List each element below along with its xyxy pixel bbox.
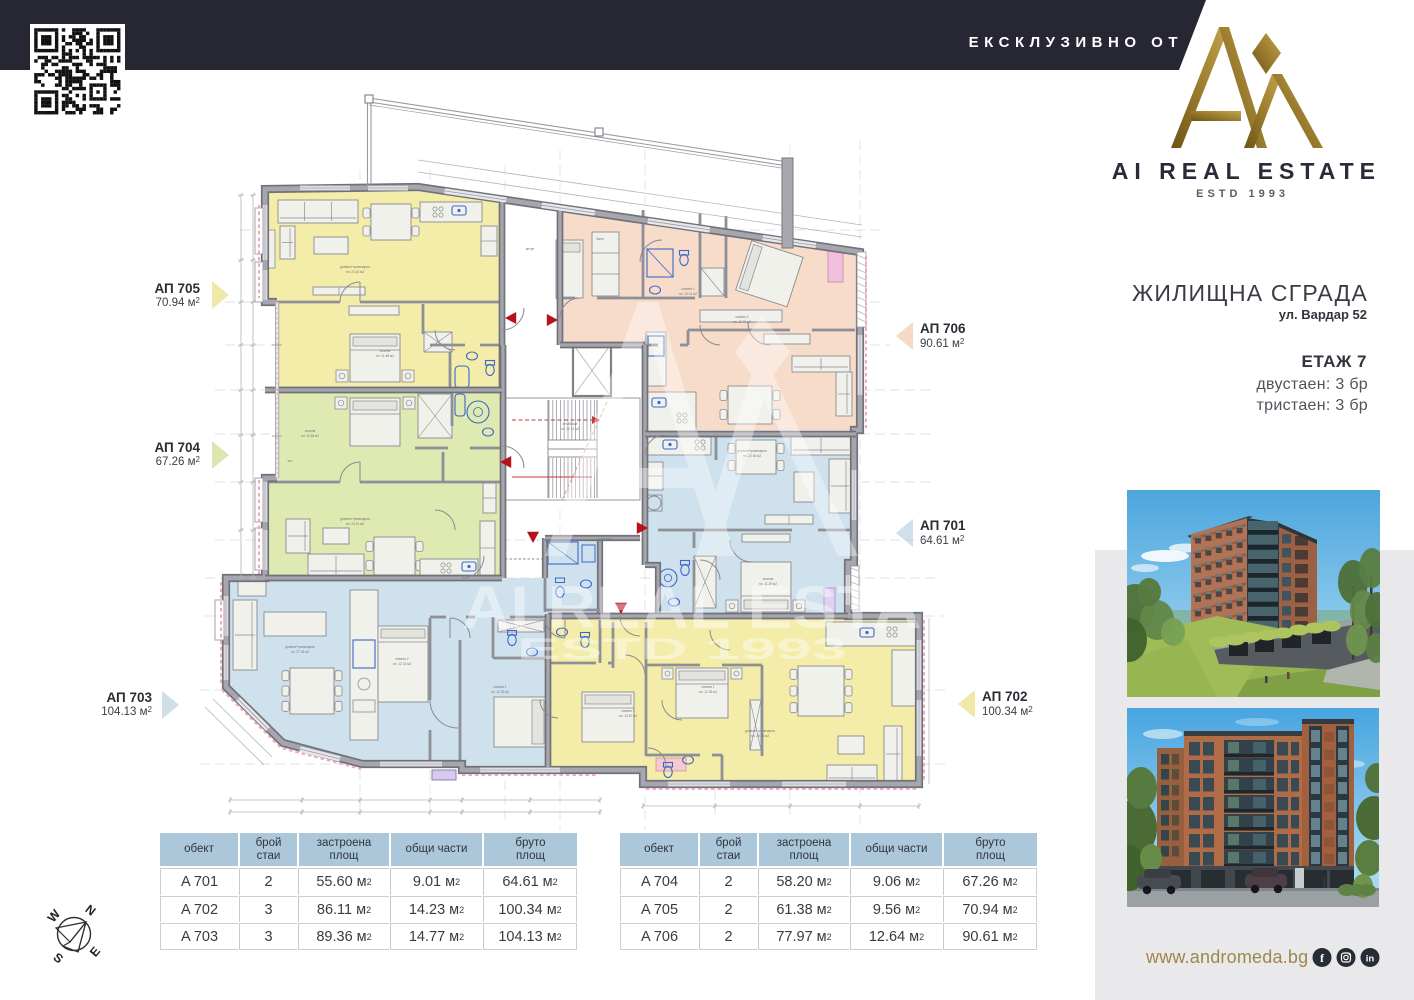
svg-text:пл. 12.33 м2: пл. 12.33 м2 (491, 690, 509, 694)
svg-text:баня: баня (596, 237, 603, 241)
svg-text:ESTD 1993: ESTD 1993 (517, 633, 847, 666)
svg-text:дневна+трапезария: дневна+трапезария (285, 645, 315, 649)
svg-text:пл. 13.67 м2: пл. 13.67 м2 (619, 714, 637, 718)
svg-text:пл. 22.19 м2: пл. 22.19 м2 (561, 427, 579, 431)
svg-text:пл. 12.28 м2: пл. 12.28 м2 (699, 690, 717, 694)
svg-text:пл. 28.04 м2: пл. 28.04 м2 (751, 734, 769, 738)
svg-text:спалня 1: спалня 1 (681, 287, 694, 291)
svg-text:пл. 13.01 м2: пл. 13.01 м2 (679, 292, 697, 296)
svg-text:пл. 11.68 м2: пл. 11.68 м2 (301, 434, 319, 438)
svg-text:пл. 24.41 м2: пл. 24.41 м2 (346, 522, 364, 526)
svg-text:коридор 1: коридор 1 (599, 537, 614, 541)
svg-text:спалня 1: спалня 1 (701, 685, 714, 689)
svg-text:спалня: спалня (380, 349, 391, 353)
svg-text:дневна+трапезария: дневна+трапезария (340, 517, 370, 521)
svg-text:дневна+трапезария: дневна+трапезария (340, 265, 370, 269)
svg-text:спалня 1: спалня 1 (493, 685, 506, 689)
svg-text:пл. 12.31 м2: пл. 12.31 м2 (393, 662, 411, 666)
svg-text:антре: антре (526, 247, 535, 251)
svg-text:дневна+трапезария: дневна+трапезария (745, 729, 775, 733)
svg-text:спалня 2: спалня 2 (395, 657, 408, 661)
svg-text:пл. 11.68 м2: пл. 11.68 м2 (376, 354, 394, 358)
svg-text:кът: кът (288, 459, 293, 463)
svg-text:пл. 11.73 м2: пл. 11.73 м2 (733, 320, 751, 324)
svg-text:AI REAL ESTATE: AI REAL ESTATE (462, 574, 1002, 641)
svg-text:пл. 23.40 м2: пл. 23.40 м2 (346, 270, 364, 274)
svg-text:спалня 3: спалня 3 (621, 709, 634, 713)
svg-text:спалня: спалня (305, 429, 316, 433)
svg-text:спалня 2: спалня 2 (735, 315, 748, 319)
svg-text:пл. 27.09 м2: пл. 27.09 м2 (291, 650, 309, 654)
svg-text:стълбище: стълбище (563, 422, 578, 426)
